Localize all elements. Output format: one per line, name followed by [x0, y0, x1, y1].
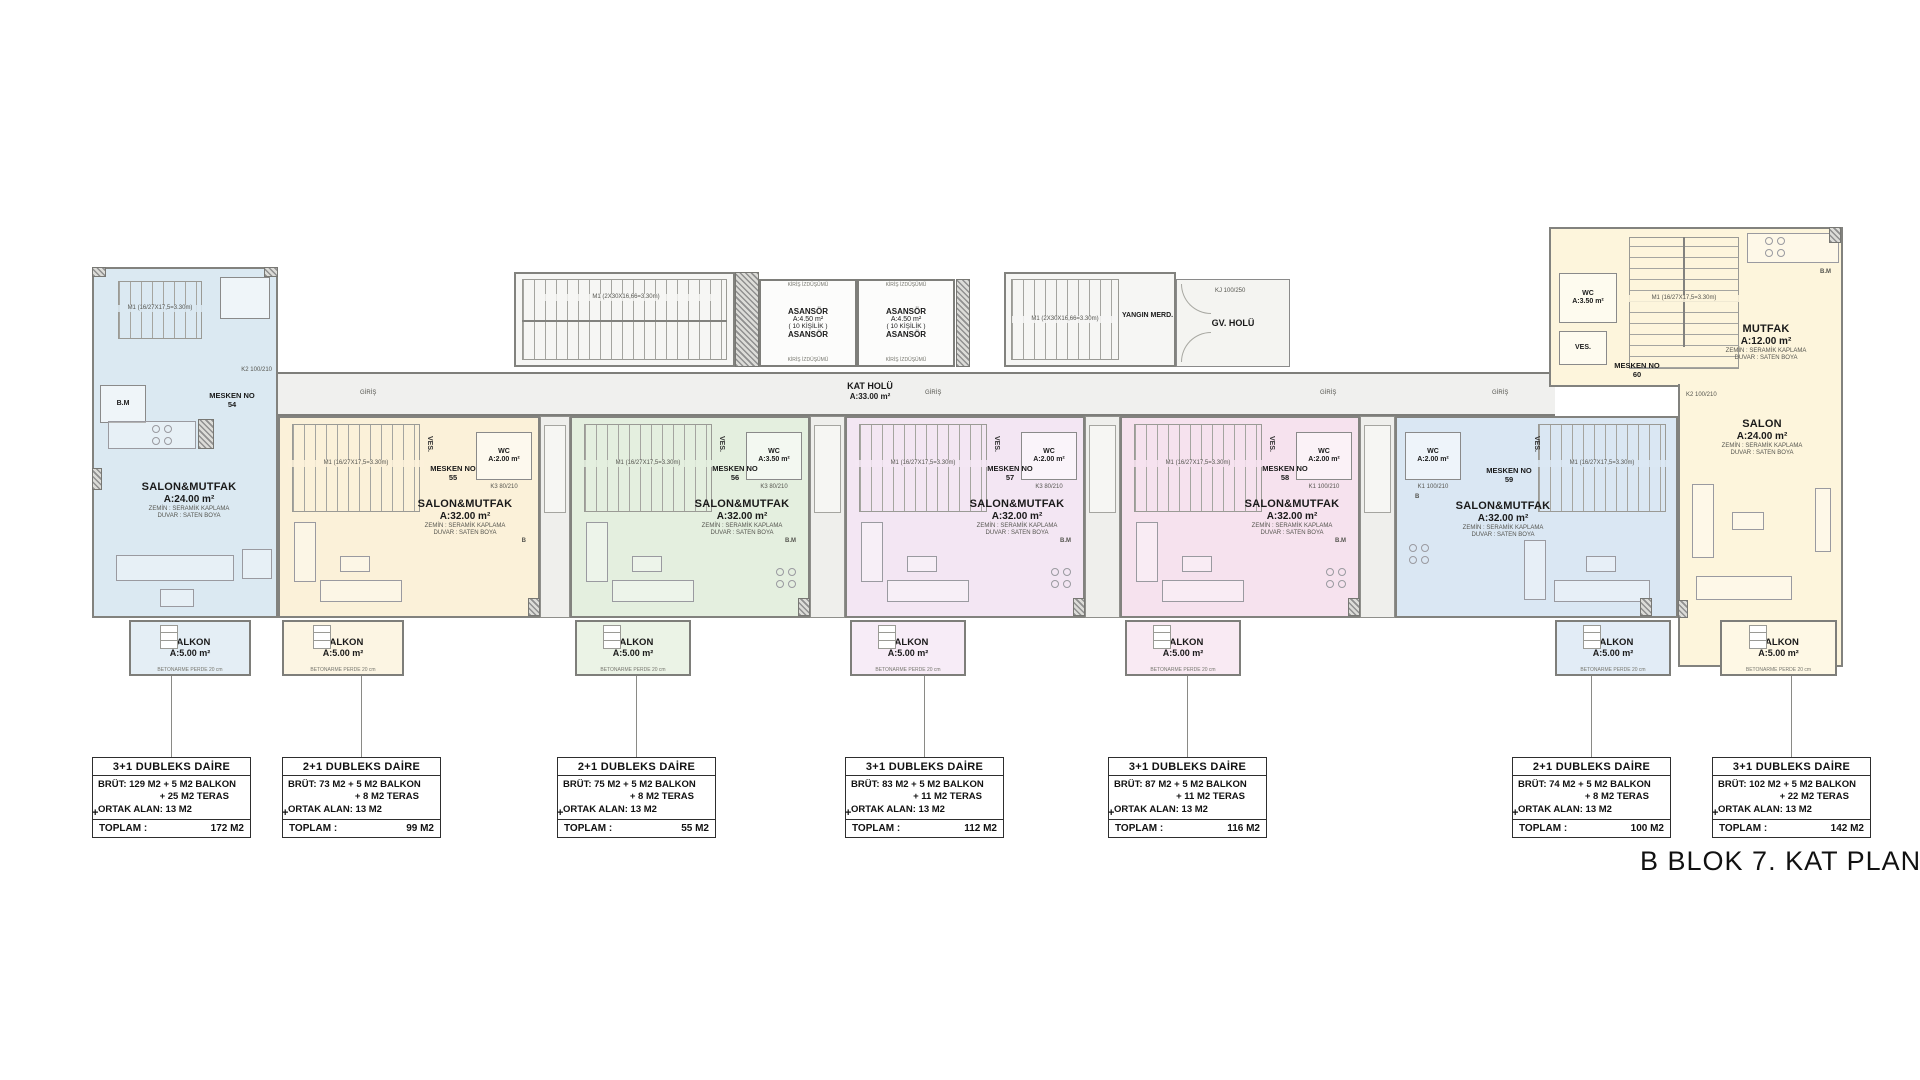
wc-area-label: A:3.50 m²: [1572, 298, 1604, 306]
floor-hall-area: A:33.00 m²: [810, 392, 930, 402]
wc-label: WC: [1582, 290, 1594, 298]
bm-label: B.M: [1820, 269, 1831, 276]
stair-code-label: M1 (16/27X17,5=3.30m): [1625, 295, 1743, 302]
sofa: [1554, 580, 1650, 602]
apartment-type: 3+1 DUBLEKS DAİRE: [93, 758, 250, 776]
door-arc: [1181, 332, 1211, 362]
balcony-area: A:5.00 m²: [170, 648, 211, 659]
mesken-number: 60: [1587, 370, 1687, 379]
salon-label: SALON A:24.00 m² ZEMİN : SERAMİK KAPLAMA…: [1696, 418, 1828, 457]
sofa: [1136, 522, 1158, 582]
plus-sign: +: [1512, 806, 1518, 820]
door-code-label: K3 80/210: [744, 484, 804, 491]
room-name: SALON&MUTFAK: [1217, 498, 1367, 511]
teras-line: + 22 M2 TERAS: [1718, 791, 1865, 803]
coffee-table: [1732, 512, 1764, 530]
vestibule-label: VES.: [993, 436, 1000, 452]
sofa: [1162, 580, 1244, 602]
mesken-no: MESKEN NO 60: [1587, 361, 1687, 380]
leader-line: [1791, 676, 1792, 757]
toplam-label: TOPLAM :: [1719, 823, 1767, 834]
bm-label: B.M: [785, 538, 796, 545]
room-area: A:32.00 m²: [390, 511, 540, 523]
wall-pier: [198, 419, 214, 449]
toplam-label: TOPLAM :: [1115, 823, 1163, 834]
plus-sign: +: [282, 806, 288, 820]
coffee-table: [907, 556, 937, 572]
toplam-label: TOPLAM :: [99, 823, 147, 834]
elevator-area: A:4.50 m²: [793, 316, 823, 323]
stove-burners: [1409, 544, 1431, 566]
brut-line: BRÜT: 73 M2 + 5 M2 BALKON: [288, 779, 435, 791]
entrance-label: GİRİŞ: [1320, 390, 1336, 397]
coffee-table: [160, 589, 194, 607]
room-name: SALON: [1696, 418, 1828, 431]
stove-burners: [1326, 568, 1348, 590]
elevator-label: ASANSÖR: [886, 307, 926, 316]
beam-label: KİRİŞ İZDÜŞÜMÜ: [761, 283, 855, 289]
beam-label: KİRİŞ İZDÜŞÜMÜ: [859, 283, 953, 289]
leader-line: [361, 676, 362, 757]
wc-label: WC: [768, 448, 780, 456]
sofa: [320, 580, 402, 602]
teras-line: + 8 M2 TERAS: [563, 791, 710, 803]
bm-label: B.M: [117, 400, 130, 408]
leader-line: [1591, 676, 1592, 757]
stair-code-label: M1 (2X30X16,66=3.30m): [1012, 316, 1118, 323]
wall-pier: [1678, 600, 1688, 618]
mesken-no: MESKEN NO 54: [190, 391, 274, 410]
leader-line: [1187, 676, 1188, 757]
sofa: [1692, 484, 1714, 558]
wall-pier: [798, 598, 810, 616]
wall-note: BETONARME PERDE 20 cm: [852, 667, 964, 673]
vestibule-label: VES.: [1533, 436, 1540, 452]
room-area: A:32.00 m²: [1217, 511, 1367, 523]
door-code-label: KJ 100/250: [1215, 288, 1245, 295]
door-code-label: K3 80/210: [474, 484, 534, 491]
apartment-info-box: 3+1 DUBLEKS DAİRE BRÜT: 102 M2 + 5 M2 BA…: [1712, 757, 1871, 838]
toplam-value: 116 M2: [1227, 823, 1260, 834]
bm-label: B.M: [1060, 538, 1071, 545]
finish-note: DUVAR : SATEN BOYA: [667, 530, 817, 537]
teras-line: + 11 M2 TERAS: [851, 791, 998, 803]
wall-pier: [528, 598, 540, 616]
sofa: [887, 580, 969, 602]
mesken-label: MESKEN NO: [690, 464, 780, 473]
ortak-line: ORTAK ALAN: 13 M2: [1718, 804, 1865, 816]
apartment-info-box: 2+1 DUBLEKS DAİRE BRÜT: 75 M2 + 5 M2 BAL…: [557, 757, 716, 838]
floor-plan-canvas: M1 (2X30X16,66=3.30m) KİRİŞ İZDÜŞÜMÜ ASA…: [0, 0, 1920, 1080]
vestibule-label: VES.: [1268, 436, 1275, 452]
finish-note: ZEMİN : SERAMİK KAPLAMA: [390, 523, 540, 530]
mesken-no: MESKEN NO 59: [1459, 466, 1559, 485]
toplam-value: 55 M2: [681, 823, 709, 834]
mesken-label: MESKEN NO: [1240, 464, 1330, 473]
room-area: A:12.00 m²: [1701, 336, 1831, 348]
door-arc: [1181, 284, 1211, 314]
finish-note: DUVAR : SATEN BOYA: [1696, 450, 1828, 457]
stove-burners: [1051, 568, 1073, 590]
mesken-label: MESKEN NO: [965, 464, 1055, 473]
dimension-stack: [1749, 625, 1767, 649]
toplam-value: 100 M2: [1631, 823, 1664, 834]
wc-label: WC: [1043, 448, 1055, 456]
room-name: SALON&MUTFAK: [390, 498, 540, 511]
wall-note: BETONARME PERDE 20 cm: [1557, 667, 1669, 673]
unit-56: M1 (16/27X17,5=3.30m) VES. WC A:3.50 m² …: [570, 416, 810, 618]
mesken-number: 59: [1459, 475, 1559, 484]
sofa: [116, 555, 234, 581]
wc-area-label: A:2.00 m²: [1417, 456, 1449, 464]
ortak-line: ORTAK ALAN: 13 M2: [288, 804, 435, 816]
shaft-room: [814, 425, 841, 513]
finish-note: DUVAR : SATEN BOYA: [124, 513, 254, 520]
apartment-type: 3+1 DUBLEKS DAİRE: [1109, 758, 1266, 776]
wall-note: BETONARME PERDE 20 cm: [1127, 667, 1239, 673]
teras-line: + 8 M2 TERAS: [1518, 791, 1665, 803]
room-name: SALON&MUTFAK: [1423, 500, 1583, 513]
sofa: [612, 580, 694, 602]
entrance-label: GİRİŞ: [1492, 390, 1508, 397]
bm-room: B.M: [100, 385, 146, 423]
mesken-number: 57: [965, 473, 1055, 482]
vestibule-label: VES.: [718, 436, 725, 452]
balcony: BALKON A:5.00 m² BETONARME PERDE 20 cm: [1125, 620, 1241, 676]
balcony-area: A:5.00 m²: [1758, 648, 1799, 659]
balcony: BALKON A:5.00 m² BETONARME PERDE 20 cm: [575, 620, 691, 676]
finish-note: DUVAR : SATEN BOYA: [1217, 530, 1367, 537]
balcony: BALKON A:5.00 m² BETONARME PERDE 20 cm: [850, 620, 966, 676]
shaft-room: [1364, 425, 1391, 513]
toplam-label: TOPLAM :: [289, 823, 337, 834]
apartment-type: 2+1 DUBLEKS DAİRE: [558, 758, 715, 776]
toplam-value: 112 M2: [964, 823, 997, 834]
balcony: BALKON A:5.00 m² BETONARME PERDE 20 cm: [129, 620, 251, 676]
balcony-area: A:5.00 m²: [1163, 648, 1204, 659]
leader-line: [924, 676, 925, 757]
unit-60-upper: WC A:3.50 m² VES. M1 (16/27X17,5=3.30m) …: [1549, 227, 1843, 387]
armchair: [242, 549, 272, 579]
brut-line: BRÜT: 102 M2 + 5 M2 BALKON: [1718, 779, 1865, 791]
elevator-label-2: ASANSÖR: [788, 330, 828, 339]
wall-note: BETONARME PERDE 20 cm: [1722, 667, 1835, 673]
apartment-type: 3+1 DUBLEKS DAİRE: [1713, 758, 1870, 776]
unit-57: M1 (16/27X17,5=3.30m) VES. WC A:2.00 m² …: [845, 416, 1085, 618]
mesken-number: 58: [1240, 473, 1330, 482]
dimension-stack: [1153, 625, 1171, 649]
brut-line: BRÜT: 74 M2 + 5 M2 BALKON: [1518, 779, 1665, 791]
room-name: SALON&MUTFAK: [667, 498, 817, 511]
wc-room: WC A:2.00 m²: [1405, 432, 1461, 480]
entrance-label: GİRİŞ: [360, 390, 376, 397]
stove-burners: [776, 568, 798, 590]
shaft-room: [544, 425, 566, 513]
apartment-info-box: 2+1 DUBLEKS DAİRE BRÜT: 74 M2 + 5 M2 BAL…: [1512, 757, 1671, 838]
elevator-capacity: ( 10 KİŞİLİK ): [886, 323, 925, 330]
door-code-label: K3 80/210: [1019, 484, 1079, 491]
room-area: A:32.00 m²: [1423, 513, 1583, 525]
wc-room: WC A:3.50 m²: [1559, 273, 1617, 323]
stair-code-label: M1 (16/27X17,5=3.30m): [102, 305, 218, 312]
security-hall: KJ 100/250 GV. HOLÜ: [1176, 279, 1290, 367]
wall-note: BETONARME PERDE 20 cm: [284, 667, 402, 673]
wall-pier: [92, 468, 102, 490]
kitchen-label: MUTFAK A:12.00 m² ZEMİN : SERAMİK KAPLAM…: [1701, 323, 1831, 362]
fire-stairwell: M1 (2X30X16,66=3.30m) YANGIN MERD.: [1004, 272, 1176, 367]
mesken-no: MESKEN NO 56: [690, 464, 780, 483]
wall-pier: [735, 272, 759, 367]
finish-note: ZEMİN : SERAMİK KAPLAMA: [942, 523, 1092, 530]
apartment-info-box: 2+1 DUBLEKS DAİRE BRÜT: 73 M2 + 5 M2 BAL…: [282, 757, 441, 838]
apartment-info-box: 3+1 DUBLEKS DAİRE BRÜT: 83 M2 + 5 M2 BAL…: [845, 757, 1004, 838]
toplam-value: 99 M2: [406, 823, 434, 834]
toplam-label: TOPLAM :: [852, 823, 900, 834]
elevator-area: A:4.50 m²: [891, 316, 921, 323]
shaft-room: [1089, 425, 1116, 513]
finish-note: ZEMİN : SERAMİK KAPLAMA: [1701, 348, 1831, 355]
elevator-2: KİRİŞ İZDÜŞÜMÜ ASANSÖR A:4.50 m² ( 10 Kİ…: [857, 279, 955, 367]
beam-label: KİRİŞ İZDÜŞÜMÜ: [859, 358, 953, 364]
room-name: SALON&MUTFAK: [124, 481, 254, 494]
room-label: SALON&MUTFAK A:32.00 m² ZEMİN : SERAMİK …: [1217, 498, 1367, 537]
finish-note: DUVAR : SATEN BOYA: [390, 530, 540, 537]
door-code-label: K1 100/210: [1403, 484, 1463, 491]
room-name: SALON&MUTFAK: [942, 498, 1092, 511]
door-code-label: K2 100/210: [1686, 392, 1717, 399]
ortak-line: ORTAK ALAN: 13 M2: [1114, 804, 1261, 816]
b-label: B: [522, 538, 526, 545]
teras-line: + 11 M2 TERAS: [1114, 791, 1261, 803]
leader-line: [171, 676, 172, 757]
finish-note: ZEMİN : SERAMİK KAPLAMA: [667, 523, 817, 530]
vestibule-room: VES.: [1559, 331, 1607, 365]
stair-code-label: M1 (2X30X16,66=3.30m): [536, 294, 716, 301]
room-label: SALON&MUTFAK A:32.00 m² ZEMİN : SERAMİK …: [1423, 500, 1583, 539]
wc-label: WC: [1427, 448, 1439, 456]
room-area: A:32.00 m²: [942, 511, 1092, 523]
wall-pier: [1073, 598, 1085, 616]
unit-55: M1 (16/27X17,5=3.30m) VES. WC A:2.00 m² …: [278, 416, 540, 618]
elevator-1: KİRİŞ İZDÜŞÜMÜ ASANSÖR A:4.50 m² ( 10 Kİ…: [759, 279, 857, 367]
wc-label: WC: [498, 448, 510, 456]
balcony-area: A:5.00 m²: [888, 648, 929, 659]
finish-note: ZEMİN : SERAMİK KAPLAMA: [1696, 443, 1828, 450]
sofa: [586, 522, 608, 582]
common-stairwell: M1 (2X30X16,66=3.30m): [514, 272, 735, 367]
elevator-label: ASANSÖR: [788, 307, 828, 316]
balcony: BALKON A:5.00 m² BETONARME PERDE 20 cm: [282, 620, 404, 676]
unit-58: M1 (16/27X17,5=3.30m) VES. WC A:2.00 m² …: [1120, 416, 1360, 618]
tv-unit: [1815, 488, 1831, 552]
room-label: SALON&MUTFAK A:32.00 m² ZEMİN : SERAMİK …: [390, 498, 540, 537]
dimension-stack: [313, 625, 331, 649]
wall-pier: [92, 267, 106, 277]
plus-sign: +: [845, 806, 851, 820]
wall-pier: [1829, 227, 1841, 243]
apartment-type: 2+1 DUBLEKS DAİRE: [283, 758, 440, 776]
elevator-label-2: ASANSÖR: [886, 330, 926, 339]
balcony-area: A:5.00 m²: [323, 648, 364, 659]
beam-label: KİRİŞ İZDÜŞÜMÜ: [761, 358, 855, 364]
bath-room: [220, 277, 270, 319]
plus-sign: +: [1712, 806, 1718, 820]
coffee-table: [1182, 556, 1212, 572]
room-label: SALON&MUTFAK A:24.00 m² ZEMİN : SERAMİK …: [124, 481, 254, 520]
sofa: [1696, 576, 1792, 600]
shaft: [540, 416, 570, 618]
mesken-label: MESKEN NO: [408, 464, 498, 473]
toplam-label: TOPLAM :: [1519, 823, 1567, 834]
vestibule-label: VES.: [426, 436, 433, 452]
balcony-area: A:5.00 m²: [1593, 648, 1634, 659]
ortak-line: ORTAK ALAN: 13 M2: [98, 804, 245, 816]
teras-line: + 8 M2 TERAS: [288, 791, 435, 803]
door-code-label: K2 100/210: [241, 367, 272, 374]
mesken-label: MESKEN NO: [1459, 466, 1559, 475]
dimension-stack: [603, 625, 621, 649]
mesken-number: 56: [690, 473, 780, 482]
leader-line: [636, 676, 637, 757]
stair-code-label: M1 (16/27X17,5=3.30m): [288, 460, 424, 467]
finish-note: ZEMİN : SERAMİK KAPLAMA: [1423, 525, 1583, 532]
apartment-info-box: 3+1 DUBLEKS DAİRE BRÜT: 87 M2 + 5 M2 BAL…: [1108, 757, 1267, 838]
brut-line: BRÜT: 83 M2 + 5 M2 BALKON: [851, 779, 998, 791]
toplam-value: 142 M2: [1831, 823, 1864, 834]
apartment-type: 3+1 DUBLEKS DAİRE: [846, 758, 1003, 776]
plus-sign: +: [92, 806, 98, 820]
ortak-line: ORTAK ALAN: 13 M2: [851, 804, 998, 816]
fire-stairs-label: YANGIN MERD.: [1122, 312, 1176, 321]
sofa: [1524, 540, 1546, 600]
door-code-label: K1 100/210: [1294, 484, 1354, 491]
brut-line: BRÜT: 129 M2 + 5 M2 BALKON: [98, 779, 245, 791]
balcony-area: A:5.00 m²: [613, 648, 654, 659]
coffee-table: [632, 556, 662, 572]
stove-burners: [1765, 237, 1787, 259]
room-label: SALON&MUTFAK A:32.00 m² ZEMİN : SERAMİK …: [942, 498, 1092, 537]
wall-note: BETONARME PERDE 20 cm: [577, 667, 689, 673]
ortak-line: ORTAK ALAN: 13 M2: [563, 804, 710, 816]
dimension-stack: [878, 625, 896, 649]
room-name: MUTFAK: [1701, 323, 1831, 336]
balcony: BALKON A:5.00 m² BETONARME PERDE 20 cm: [1720, 620, 1837, 676]
stair-divider: [522, 320, 727, 322]
unit-54: M1 (16/27X17,5=3.30m) B.M MESKEN NO 54 S…: [92, 267, 278, 618]
toplam-label: TOPLAM :: [564, 823, 612, 834]
wall-pier: [956, 279, 970, 367]
apartment-info-box: 3+1 DUBLEKS DAİRE BRÜT: 129 M2 + 5 M2 BA…: [92, 757, 251, 838]
plus-sign: +: [557, 806, 563, 820]
ortak-line: ORTAK ALAN: 13 M2: [1518, 804, 1665, 816]
bm-label: B.M: [1335, 538, 1346, 545]
mesken-no: MESKEN NO 55: [408, 464, 498, 483]
room-label: SALON&MUTFAK A:32.00 m² ZEMİN : SERAMİK …: [667, 498, 817, 537]
brut-line: BRÜT: 75 M2 + 5 M2 BALKON: [563, 779, 710, 791]
balcony: BALKON A:5.00 m² BETONARME PERDE 20 cm: [1555, 620, 1671, 676]
dimension-stack: [1583, 625, 1601, 649]
finish-note: ZEMİN : SERAMİK KAPLAMA: [1217, 523, 1367, 530]
wall-note: BETONARME PERDE 20 cm: [131, 667, 249, 673]
dimension-stack: [160, 625, 178, 649]
finish-note: ZEMİN : SERAMİK KAPLAMA: [124, 506, 254, 513]
coffee-table: [1586, 556, 1616, 572]
mesken-label: MESKEN NO: [190, 391, 274, 400]
vestibule-label: VES.: [1575, 344, 1591, 352]
kitchen-counter: [1747, 233, 1839, 263]
unit-59: M1 (16/27X17,5=3.30m) VES. WC A:2.00 m² …: [1395, 416, 1678, 618]
entrance-label: GİRİŞ: [925, 390, 941, 397]
room-area: A:32.00 m²: [667, 511, 817, 523]
page-title: B BLOK 7. KAT PLANI: [1640, 846, 1890, 877]
wall-pier: [1640, 598, 1652, 616]
wall-pier: [264, 267, 278, 277]
coffee-table: [340, 556, 370, 572]
floor-hall: KAT HOLÜ A:33.00 m² GİRİŞ GİRİŞ GİRİŞ Gİ…: [278, 372, 1555, 416]
mesken-number: 55: [408, 473, 498, 482]
mesken-no: MESKEN NO 57: [965, 464, 1055, 483]
toplam-value: 172 M2: [211, 823, 244, 834]
b-label: B: [1415, 494, 1419, 501]
room-area: A:24.00 m²: [124, 494, 254, 506]
wall-pier: [1348, 598, 1360, 616]
floor-hall-label: KAT HOLÜ A:33.00 m²: [810, 381, 930, 401]
stove-burners: [152, 425, 174, 447]
mesken-number: 54: [190, 400, 274, 409]
security-hall-label: GV. HOLÜ: [1212, 318, 1255, 329]
mesken-label: MESKEN NO: [1587, 361, 1687, 370]
apartment-type: 2+1 DUBLEKS DAİRE: [1513, 758, 1670, 776]
teras-line: + 25 M2 TERAS: [98, 791, 245, 803]
brut-line: BRÜT: 87 M2 + 5 M2 BALKON: [1114, 779, 1261, 791]
stair-divider: [1683, 237, 1685, 347]
wc-label: WC: [1318, 448, 1330, 456]
room-area: A:24.00 m²: [1696, 431, 1828, 443]
sofa: [861, 522, 883, 582]
floor-hall-name: KAT HOLÜ: [810, 381, 930, 392]
sofa: [294, 522, 316, 582]
plus-sign: +: [1108, 806, 1114, 820]
finish-note: DUVAR : SATEN BOYA: [1423, 532, 1583, 539]
finish-note: DUVAR : SATEN BOYA: [942, 530, 1092, 537]
elevator-capacity: ( 10 KİŞİLİK ): [788, 323, 827, 330]
finish-note: DUVAR : SATEN BOYA: [1701, 355, 1831, 362]
mesken-no: MESKEN NO 58: [1240, 464, 1330, 483]
